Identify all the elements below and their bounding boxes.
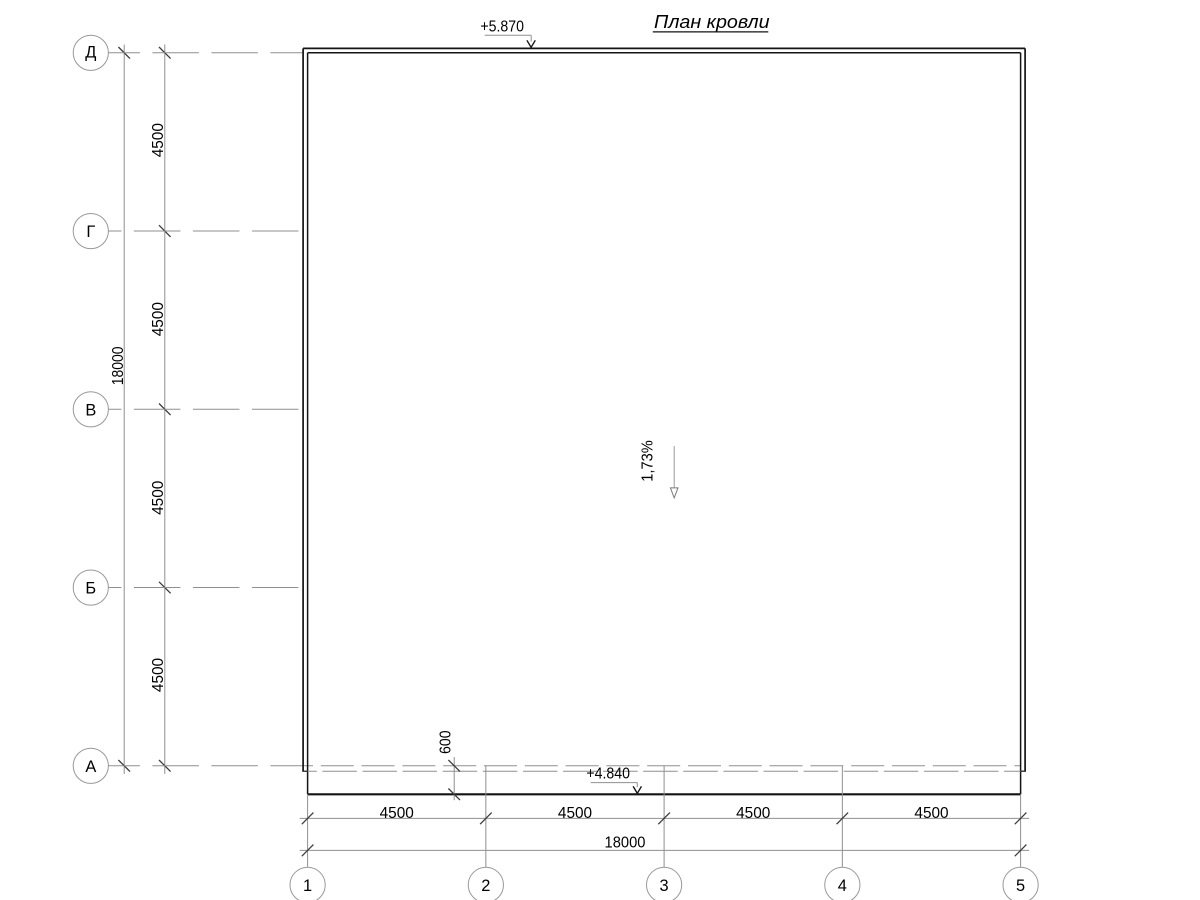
svg-text:4500: 4500 [150, 658, 167, 692]
svg-text:18000: 18000 [110, 346, 127, 385]
svg-text:18000: 18000 [605, 835, 646, 852]
svg-text:4500: 4500 [150, 481, 167, 515]
svg-text:4500: 4500 [150, 302, 167, 336]
svg-text:Д: Д [85, 44, 96, 62]
svg-text:+5.870: +5.870 [480, 18, 524, 35]
svg-text:В: В [85, 401, 96, 419]
svg-text:600: 600 [438, 730, 455, 754]
svg-text:2: 2 [481, 877, 490, 895]
svg-text:4500: 4500 [150, 123, 167, 157]
svg-text:+4.840: +4.840 [586, 766, 630, 783]
svg-text:А: А [85, 758, 96, 776]
svg-text:4500: 4500 [736, 805, 770, 822]
svg-text:4500: 4500 [558, 805, 592, 822]
svg-text:3: 3 [660, 877, 669, 895]
svg-text:5: 5 [1016, 877, 1025, 895]
svg-text:4: 4 [838, 877, 847, 895]
svg-text:1: 1 [303, 877, 312, 895]
svg-text:План кровли: План кровли [654, 11, 770, 32]
svg-text:4500: 4500 [380, 805, 414, 822]
svg-text:Б: Б [85, 580, 96, 598]
svg-text:1,73%: 1,73% [640, 440, 657, 482]
svg-text:Г: Г [86, 223, 95, 241]
svg-text:4500: 4500 [914, 805, 948, 822]
